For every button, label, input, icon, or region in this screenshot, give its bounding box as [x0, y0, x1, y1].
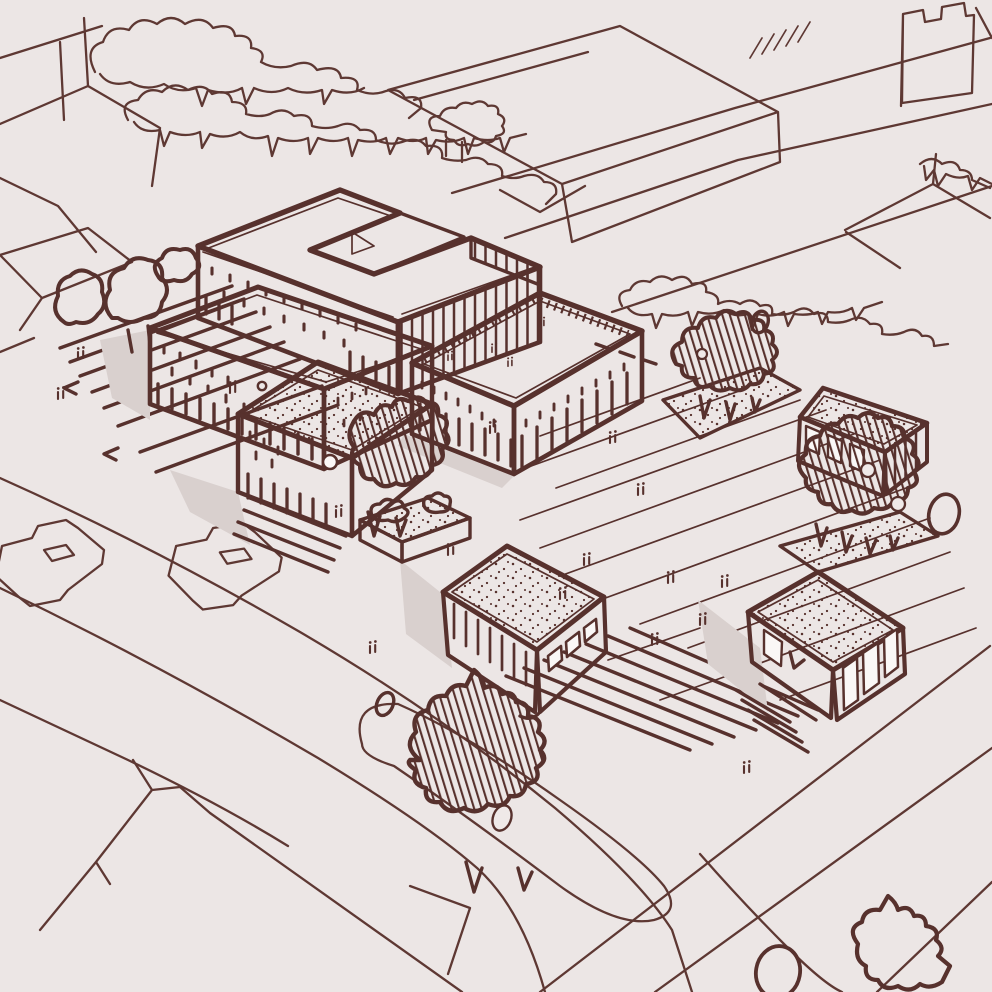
sketch-stage: Hand-drawn architectural masterplan sket…: [0, 0, 992, 992]
east-tree-hole-2: [891, 497, 905, 511]
sketch-canvas: Hand-drawn architectural masterplan sket…: [0, 0, 992, 992]
front-pavilion-round-window: [323, 455, 337, 469]
east-tree-hole-1: [861, 463, 875, 477]
plaza-tree-hole: [697, 349, 707, 359]
